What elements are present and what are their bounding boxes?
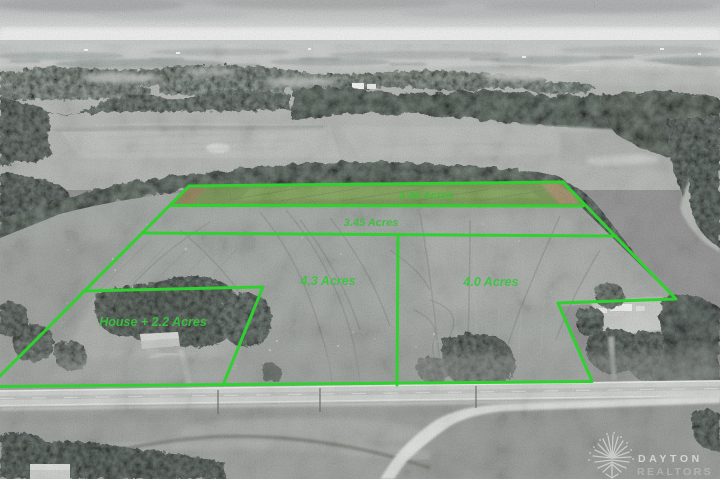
svg-text:3.45 Acres: 3.45 Acres <box>344 217 399 229</box>
svg-text:REALTORS: REALTORS <box>637 466 713 478</box>
svg-text:4.3 Acres: 4.3 Acres <box>299 274 355 288</box>
svg-text:House + 2.2 Acres: House + 2.2 Acres <box>99 315 207 329</box>
svg-text:4.0 Acres: 4.0 Acres <box>462 275 518 289</box>
svg-text:3.46 Acres: 3.46 Acres <box>399 190 454 202</box>
svg-text:DAYTON: DAYTON <box>638 453 703 465</box>
